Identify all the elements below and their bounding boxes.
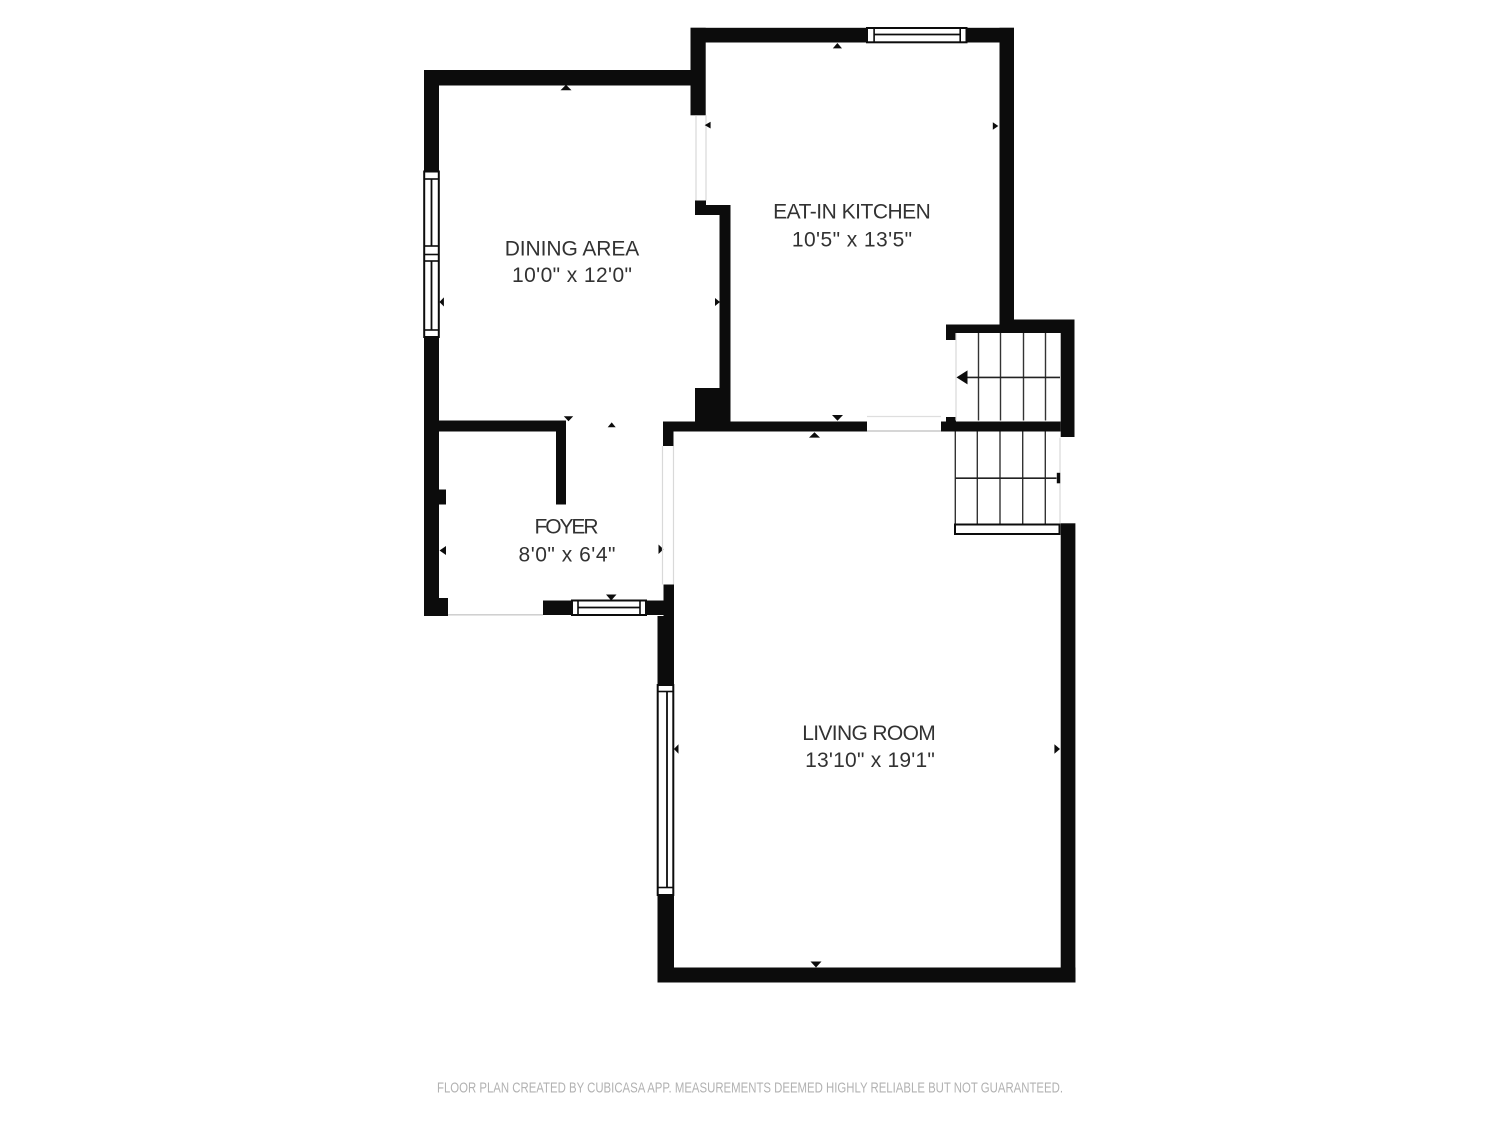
svg-text:8'0" x 6'4": 8'0" x 6'4"	[519, 544, 616, 567]
svg-text:10'5" x 13'5": 10'5" x 13'5"	[792, 229, 912, 252]
svg-text:10'0" x 12'0": 10'0" x 12'0"	[512, 264, 632, 287]
svg-text:FLOOR PLAN CREATED BY CUBICASA: FLOOR PLAN CREATED BY CUBICASA APP. MEAS…	[437, 1080, 1063, 1097]
svg-text:13'10" x 19'1": 13'10" x 19'1"	[805, 749, 935, 772]
svg-text:LIVING ROOM: LIVING ROOM	[802, 722, 936, 745]
svg-text:FOYER: FOYER	[535, 515, 599, 538]
svg-text:EAT-IN KITCHEN: EAT-IN KITCHEN	[773, 201, 931, 224]
svg-text:DINING AREA: DINING AREA	[505, 237, 640, 260]
